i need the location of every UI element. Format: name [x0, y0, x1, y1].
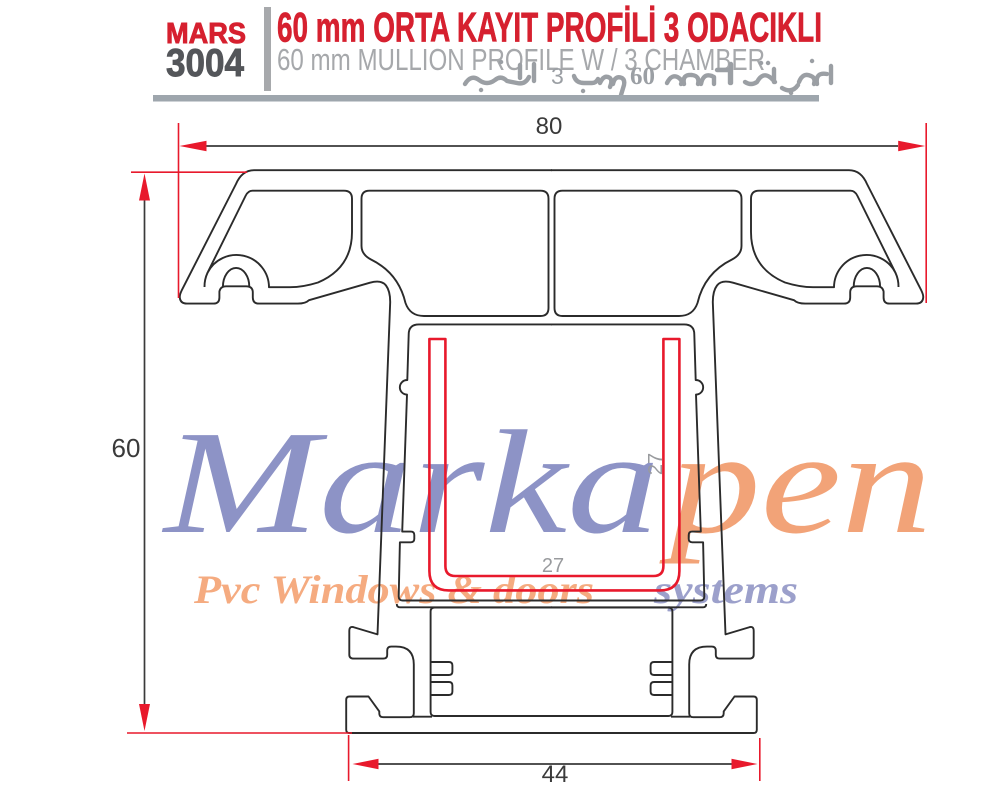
svg-text:3004: 3004: [166, 42, 244, 85]
svg-text:44: 44: [542, 761, 569, 786]
svg-text:Marka: Marka: [161, 401, 660, 565]
svg-text:60: 60: [112, 433, 141, 463]
svg-text:27: 27: [645, 453, 667, 475]
svg-text:60: 60: [630, 63, 655, 90]
svg-text:27: 27: [542, 555, 564, 577]
svg-text:systems: systems: [653, 567, 798, 612]
svg-text:80: 80: [536, 113, 563, 140]
svg-text:3: 3: [551, 63, 564, 89]
